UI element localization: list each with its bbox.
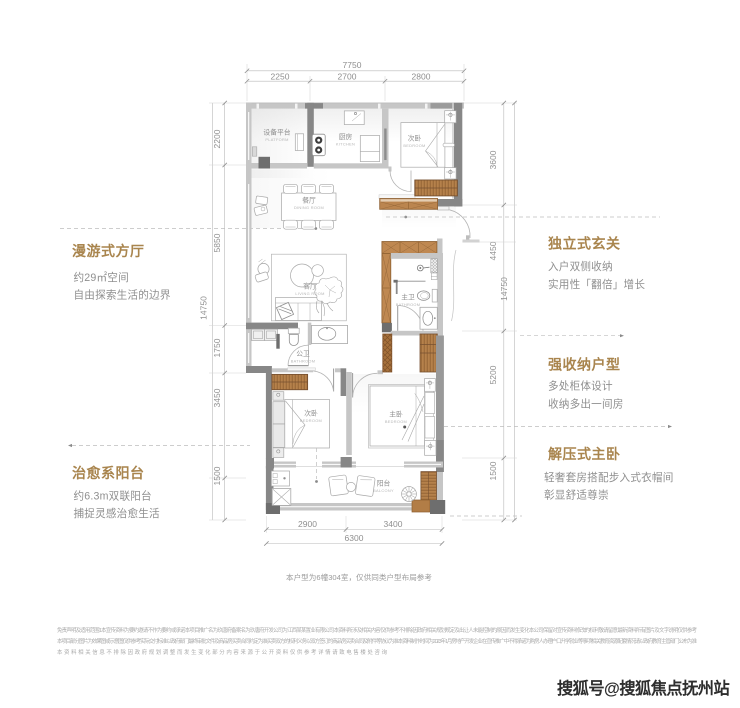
svg-text:3400: 3400 [384, 519, 403, 529]
svg-text:本项目部分图片为效果图或示意图仅供参考实际交付标准以政府部门: 本项目部分图片为效果图或示意图仅供参考实际交付标准以政府部门最终审批文件及商品房… [57, 637, 698, 645]
svg-text:实用性「翻倍」增长: 实用性「翻倍」增长 [548, 278, 645, 291]
svg-text:BEDROOM: BEDROOM [403, 143, 425, 148]
svg-text:2800: 2800 [412, 72, 431, 82]
svg-text:BATHROOM: BATHROOM [291, 359, 316, 364]
svg-text:客厅: 客厅 [303, 282, 317, 291]
svg-text:本资料相关信息不排除因政府规划调整而发生变化部分内容来源于公: 本资料相关信息不排除因政府规划调整而发生变化部分内容来源于公开资料仅供参考详情请… [57, 648, 388, 656]
svg-text:公卫: 公卫 [296, 350, 310, 358]
svg-text:1500: 1500 [488, 461, 498, 480]
svg-text:3450: 3450 [212, 388, 222, 407]
svg-text:主卫: 主卫 [401, 293, 415, 302]
svg-text:5200: 5200 [488, 365, 498, 384]
svg-text:5850: 5850 [212, 233, 222, 252]
svg-text:阳台: 阳台 [377, 479, 391, 488]
svg-text:2250: 2250 [271, 72, 290, 82]
svg-text:多处柜体设计: 多处柜体设计 [548, 380, 613, 393]
svg-text:BATHROOM: BATHROOM [396, 302, 421, 307]
svg-text:14750: 14750 [499, 277, 509, 301]
svg-text:收纳多出一间房: 收纳多出一间房 [548, 398, 624, 411]
svg-text:约6.3m双联阳台: 约6.3m双联阳台 [74, 490, 152, 503]
svg-text:2700: 2700 [338, 72, 357, 82]
svg-text:治愈系阳台: 治愈系阳台 [72, 465, 145, 481]
svg-text:免责声明及适用范围1本宣传资料为要约邀请不作为要约或承诺本项: 免责声明及适用范围1本宣传资料为要约邀请不作为要约或承诺本项目推广名为玖唐府备案… [57, 626, 698, 634]
svg-text:强收纳户型: 强收纳户型 [548, 357, 621, 373]
svg-text:6300: 6300 [345, 533, 364, 543]
svg-text:3600: 3600 [488, 150, 498, 169]
svg-text:4450: 4450 [488, 241, 498, 260]
svg-text:7750: 7750 [343, 60, 362, 70]
svg-text:设备平台: 设备平台 [263, 128, 290, 137]
svg-text:1500: 1500 [212, 466, 222, 485]
svg-text:厨房: 厨房 [339, 132, 353, 141]
svg-text:2200: 2200 [212, 129, 222, 148]
svg-text:次卧: 次卧 [304, 409, 318, 418]
svg-text:KITCHEN: KITCHEN [336, 142, 355, 147]
svg-text:自由探索生活的边界: 自由探索生活的边界 [74, 289, 171, 302]
svg-text:主卧: 主卧 [389, 410, 403, 419]
svg-text:1750: 1750 [212, 338, 222, 357]
svg-text:BEDROOM: BEDROOM [385, 419, 407, 424]
svg-text:解压式主卧: 解压式主卧 [548, 446, 621, 462]
svg-text:BEDROOM: BEDROOM [300, 418, 322, 423]
svg-text:餐厅: 餐厅 [302, 196, 316, 205]
svg-text:LIVING ROOM: LIVING ROOM [295, 291, 324, 296]
svg-text:漫游式方厅: 漫游式方厅 [72, 243, 145, 259]
svg-text:彰显舒适尊崇: 彰显舒适尊崇 [544, 489, 609, 502]
svg-text:次卧: 次卧 [408, 134, 422, 143]
svg-text:捕捉灵感治愈生活: 捕捉灵感治愈生活 [74, 507, 161, 520]
svg-text:2900: 2900 [298, 519, 317, 529]
svg-text:入户双侧收纳: 入户双侧收纳 [548, 260, 613, 273]
svg-text:约29㎡空间: 约29㎡空间 [74, 271, 129, 284]
svg-text:轻奢套房搭配步入式衣帽间: 轻奢套房搭配步入式衣帽间 [544, 471, 674, 484]
svg-text:14750: 14750 [199, 296, 209, 320]
svg-text:DINING ROOM: DINING ROOM [294, 205, 324, 210]
svg-text:独立式玄关: 独立式玄关 [548, 236, 621, 252]
svg-text:BALCONY: BALCONY [373, 488, 394, 493]
svg-text:PLATFORM: PLATFORM [265, 137, 288, 142]
svg-text:本户型为6幢304室，仅供同类户型布局参考: 本户型为6幢304室，仅供同类户型布局参考 [286, 572, 432, 582]
